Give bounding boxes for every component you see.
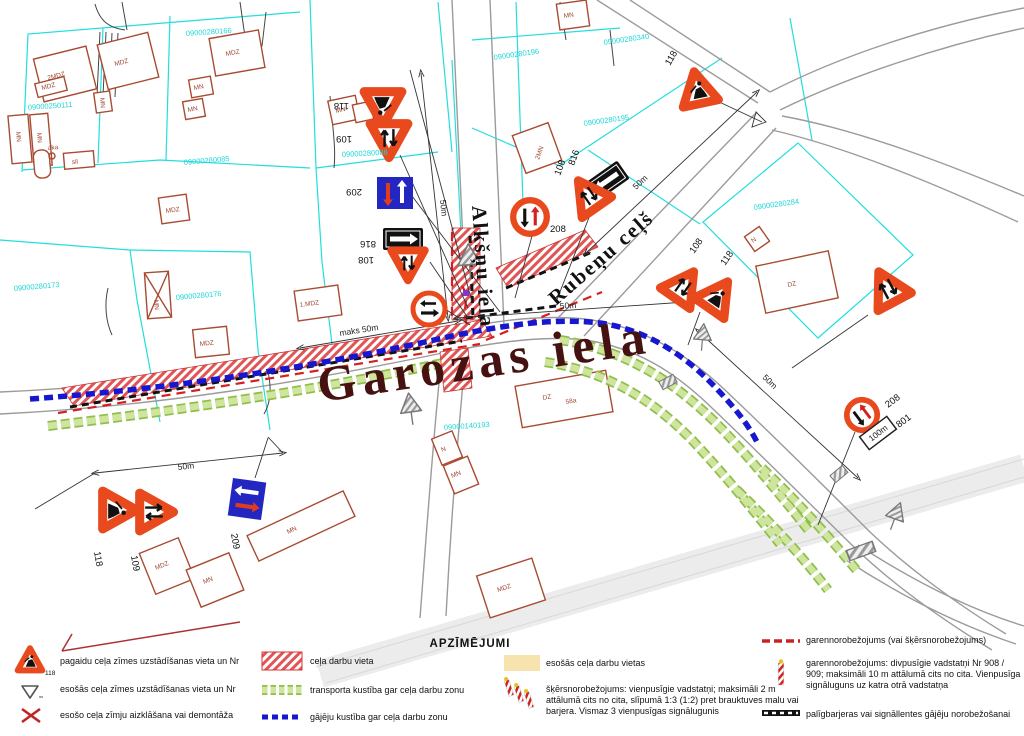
building-label: MDZ — [199, 340, 214, 348]
legend-item-long-restriction: garennorobežojums (vai šķērsnorobežojums… — [806, 635, 1021, 646]
legend-item-cross-restriction: šķērsnorobežojums: vienpusīgie vadstatņi… — [546, 684, 802, 717]
parcel-number-label: 09000250111 — [28, 100, 73, 112]
sign-number-label: 118 — [91, 551, 104, 568]
sign-108-icon — [391, 250, 424, 280]
legend-remove-sign-icon — [22, 709, 40, 722]
sign-109-twoway-icon — [862, 263, 911, 311]
sign-number-label: 208 — [550, 224, 566, 235]
signal-light — [463, 290, 469, 296]
dimension-label: 50m — [177, 460, 195, 472]
sign-118-roadworks-icon — [103, 491, 137, 529]
sign-number-label: 209 — [228, 533, 242, 551]
parcel-number-label: 09000140193 — [444, 420, 490, 432]
existing-sign-plate-icon — [830, 465, 848, 482]
legend-item-aux-barrier: palīgbarjeras vai signāllentes gājēju no… — [806, 709, 1021, 720]
building-label: MN — [14, 132, 22, 143]
legend-item-temp-sign: pagaidu ceļa zīmes uzstādīšanas vieta un… — [60, 656, 275, 667]
parcel-number-label: 09000280085 — [183, 154, 230, 167]
legend-item-pedestrian: gājēju kustība gar ceļa darbu zonu — [310, 712, 500, 723]
legend-cross-restriction-icon — [503, 676, 534, 708]
legend-temp-sign-nr: 118 — [45, 670, 56, 677]
sign-number-label: 108 — [687, 236, 705, 255]
building-label: aka — [48, 144, 59, 152]
sign-209-priority-icon — [228, 478, 267, 520]
existing-sign-icon — [693, 323, 713, 352]
sign-109-twoway-icon — [140, 493, 174, 531]
building-label: MN — [152, 300, 160, 311]
legend-existing-workzone-swatch — [504, 655, 540, 671]
parcel-number-label: 09000280088 — [342, 148, 388, 159]
sign-number-label: 816 — [360, 238, 376, 249]
traffic-management-plan: 100m 09000250111090002801660900028008509… — [0, 0, 1024, 736]
building-label: DZ — [542, 394, 552, 402]
sign-209-priority-icon — [377, 177, 413, 209]
legend-existing-sign-icon — [22, 686, 43, 698]
sign-number-label: 108 — [358, 254, 374, 265]
sign-number-label: 801 — [894, 412, 913, 430]
dimension-label: 50m — [761, 372, 780, 391]
legend-title: APZĪMĒJUMI — [400, 638, 540, 650]
legend-guide-post-icon — [778, 659, 784, 685]
legend-item-existing-sign: esošās ceļa zīmes uzstādīšanas vieta un … — [60, 684, 275, 695]
legend-item-guide-posts: garennorobežojums: divpusīgie vadstatņi … — [806, 658, 1021, 691]
parcel-number-label: 09000280176 — [175, 289, 222, 302]
building-label: MN — [98, 98, 106, 109]
sign-number-label: 118 — [334, 100, 349, 111]
parcel-number-label: 09000280196 — [493, 47, 540, 62]
legend-item-existing-workzone: esošās ceļa darbu vietas — [546, 658, 746, 669]
sign-number-label: 109 — [128, 555, 142, 573]
sign-number-label: 109 — [336, 133, 352, 144]
legend-item-workzone: ceļa darbu vieta — [310, 656, 490, 667]
legend-item-remove-sign: esošo ceļa zīmju aizklāšana vai demontāž… — [60, 710, 275, 721]
sign-circle-arrows-icon — [413, 293, 445, 325]
plan-drawing: 100m 09000250111090002801660900028008509… — [0, 0, 1024, 736]
dimension-label: 50m — [438, 199, 450, 217]
red-leader-lines — [62, 622, 240, 651]
building-label: MN — [35, 133, 43, 144]
building-label: MN — [563, 12, 574, 20]
sign-number-label: 208 — [883, 392, 902, 410]
sign-number-label: 118 — [718, 249, 736, 268]
parcel-number-label: 09000280173 — [13, 280, 60, 293]
building-label: sil — [72, 158, 79, 166]
legend-item-transport: transporta kustība gar ceļa darbu zonu — [310, 685, 500, 696]
legend-temp-sign-icon — [18, 648, 43, 670]
sign-number-label: 209 — [346, 186, 362, 197]
parcel-number-label: 09000280195 — [583, 113, 630, 128]
sign-118-roadworks-icon — [694, 271, 742, 318]
sign-208-oncoming-icon — [513, 200, 547, 234]
parcel-number-label: 09000280284 — [753, 197, 800, 212]
